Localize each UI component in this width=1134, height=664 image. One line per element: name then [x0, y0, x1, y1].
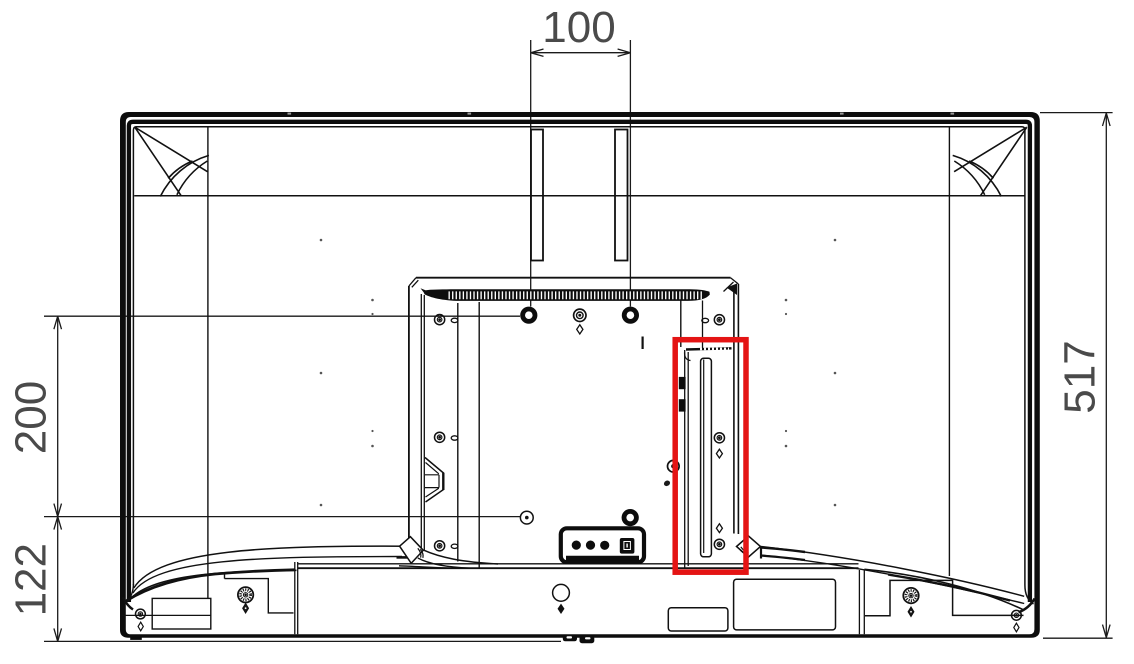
svg-text:200: 200: [7, 381, 56, 454]
svg-text:517: 517: [1056, 340, 1105, 413]
svg-text:100: 100: [542, 3, 615, 52]
svg-text:122: 122: [7, 543, 56, 616]
